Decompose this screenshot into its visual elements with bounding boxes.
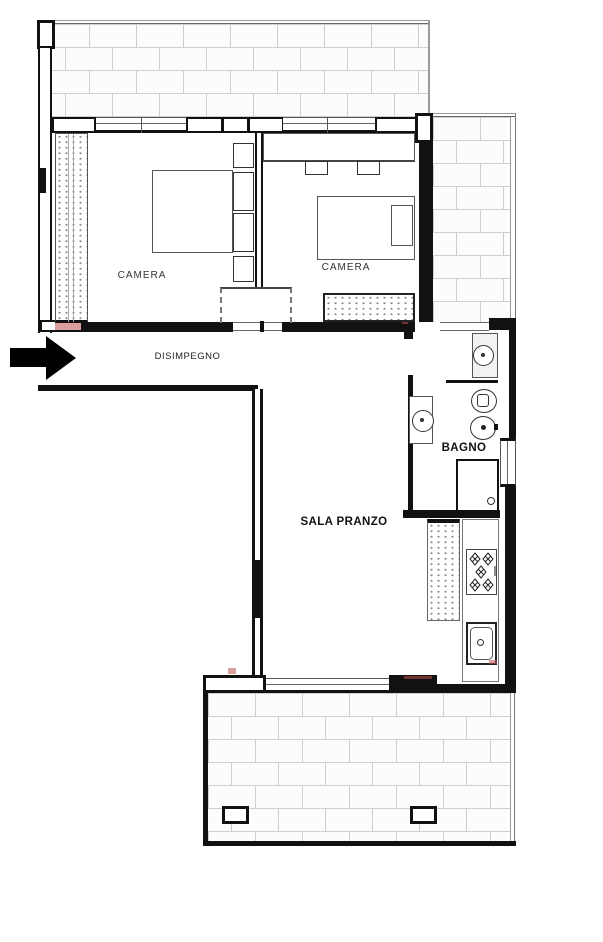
shower-drain [487,497,495,505]
top-wall-pier-3 [222,117,249,133]
bathroom-label: BAGNO [438,442,490,455]
wardrobe-left-door-line-2 [73,134,74,322]
right-terrace-edge-outer [510,117,511,322]
bathroom-bottom-wall [403,510,500,518]
camera-left-door-opening [233,322,260,331]
bottom-terrace-edge-right [510,693,511,841]
dining-label: SALA PRANZO [278,516,410,531]
bottom-terrace-wall-bottom [203,841,516,846]
terrace-pillar-1 [222,806,249,824]
top-window-1-mullion [141,117,142,133]
right-wall-window [500,438,516,487]
bottom-window-2 [328,678,389,693]
wardrobe-column-unit-2 [233,172,254,211]
bottom-terrace-brick-hatch [208,693,510,841]
right-terrace-edge-outer2 [515,113,516,322]
dining-left-wall-solid-segment [252,560,263,618]
right-wall-lower [505,487,516,692]
top-wall-pier-2 [186,117,223,133]
washbasin-left-drain [420,418,424,422]
terrace-door-threshold [440,322,489,331]
top-wall-pier-1 [52,117,96,133]
top-wall-pier-5 [375,117,418,133]
dining-left-wall [252,389,263,676]
bed-pillow-icon [391,205,413,246]
bottom-window-1 [266,678,328,693]
bottom-wall-black-right [437,684,516,693]
bidet-drain [481,425,486,430]
hallway-label: DISIMPEGNO [130,351,245,364]
washbasin-top-drain [481,353,485,357]
right-terrace-brick-hatch [433,117,510,322]
bottom-terrace-edge-right2 [514,693,515,841]
kitchen-sink-drain [477,639,484,646]
top-left-pillar [37,20,55,49]
wardrobe-band-knob-2 [357,161,380,175]
kitchen-tall-unit [427,519,460,621]
bathroom-wall-stub [404,332,413,339]
scan-mark-entry [55,323,81,330]
radiator-icon [323,293,415,322]
bidet-tap [494,424,498,430]
top-window-2-mullion [327,117,328,133]
floor-plan: DISIMPEGNO BAGNO SALA [0,0,603,942]
wc-cistern [477,394,489,407]
scan-mark-dining-wall [228,668,236,674]
camera-right-label: CAMERA [306,262,386,275]
corridor-top-wall-left [83,322,233,332]
camera-right-exterior-wall [419,143,433,322]
terrace-pillar-2 [410,806,437,824]
wardrobe-column-unit-3 [233,213,254,252]
corridor-top-wall-right [282,322,415,332]
scan-mark-bottom-wall [404,676,432,679]
wardrobe-top-band [263,133,415,162]
camera-right-door-opening [264,322,282,331]
scan-mark-sink [489,660,497,664]
bottom-wall-block-left [203,675,266,693]
wardrobe-left-icon [55,133,88,323]
top-terrace-brick-hatch [42,24,428,117]
top-wall-pier-4 [248,117,284,133]
bathroom-top-wall [446,380,498,383]
wardrobe-left-door-line-1 [68,134,69,322]
top-right-corner-pier [415,113,433,143]
entrance-arrow-icon [10,334,78,382]
right-wall-upper [509,322,516,438]
closet-niche-dashed [220,287,292,323]
camera-left-label: CAMERA [102,270,182,283]
wardrobe-column-unit-1 [233,143,254,168]
stove-burners-icon [466,549,497,595]
corridor-bottom-wall [38,385,258,391]
wardrobe-column-unit-4 [233,256,254,282]
double-bed-icon [152,170,233,253]
wardrobe-band-knob-1 [305,161,328,175]
top-terrace-edge-right [428,20,430,117]
left-wall-block [38,168,46,193]
top-window-2 [283,117,376,133]
bedroom-partition-wall [255,133,263,287]
